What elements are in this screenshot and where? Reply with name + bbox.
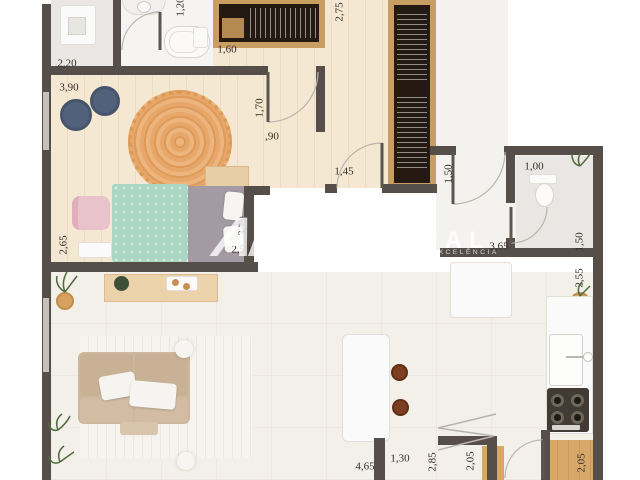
dimension-label: 1,50 <box>575 232 586 251</box>
dimension-label: 2,20 <box>57 59 76 70</box>
floor-plan: 2,203,901,201,602,751,70,901,451,501,001… <box>0 0 640 480</box>
dimension-label: 4,65 <box>355 462 374 473</box>
dimension-label: 1,00 <box>524 162 543 173</box>
dimension-label: 2,85 <box>428 452 439 471</box>
dimension-labels: 2,203,901,201,602,751,70,901,451,501,001… <box>0 0 640 480</box>
dimension-label: ,90 <box>265 132 279 143</box>
dimension-label: 3,65 <box>489 242 508 253</box>
dimension-label: 1,45 <box>334 167 353 178</box>
dimension-label: 2,05 <box>466 451 477 470</box>
dimension-label: 2,05 <box>577 453 588 472</box>
dimension-label: 3,70 <box>238 216 249 235</box>
dimension-label: 2,50 <box>231 245 250 256</box>
dimension-label: 1,20 <box>176 0 187 17</box>
dimension-label: 3,90 <box>59 83 78 94</box>
dimension-label: 2,65 <box>59 235 70 254</box>
dimension-label: 2,75 <box>335 2 346 21</box>
dimension-label: 1,70 <box>255 98 266 117</box>
dimension-label: 1,30 <box>390 454 409 465</box>
dimension-label: 1,60 <box>217 45 236 56</box>
dimension-label: 1,50 <box>444 164 455 183</box>
dimension-label: 2,55 <box>575 268 586 287</box>
